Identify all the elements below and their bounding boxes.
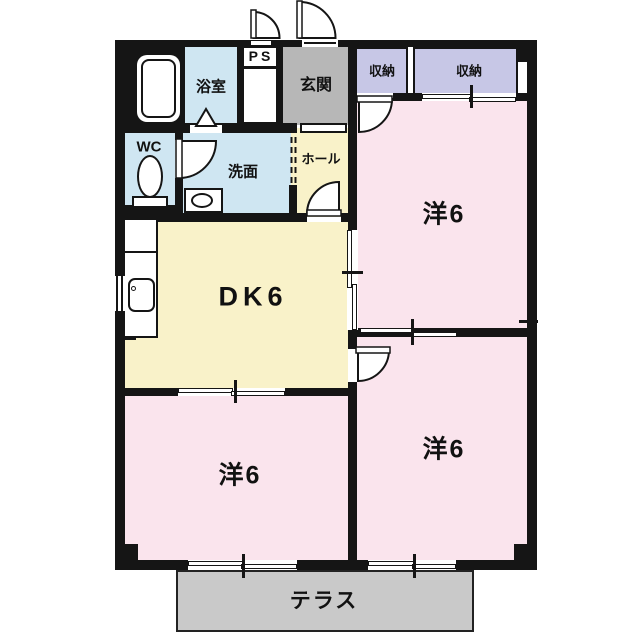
sliding-door-dk-upper-a — [347, 230, 352, 288]
sliding-tick-dk-lower — [234, 380, 237, 403]
sliding-door-dk-upper-b — [352, 284, 357, 330]
sliding-door-dk-lower-b — [231, 391, 285, 396]
western-lower-left-label: 洋6 — [219, 464, 262, 489]
window-lower-left-b — [241, 564, 297, 569]
entrance-label: 玄関 — [300, 78, 332, 94]
ps-label: PS — [249, 49, 274, 63]
sliding-tick-dk-upper — [342, 271, 363, 274]
window-tick-lower-left — [242, 554, 245, 578]
closet-left-label: 収納 — [369, 65, 395, 78]
window-lower-right-a — [368, 561, 414, 566]
dk-label: DK6 — [218, 284, 287, 311]
sliding-door-closet-right-b — [469, 97, 516, 102]
wc-label: WC — [137, 140, 162, 155]
bathroom-label: 浴室 — [196, 80, 226, 95]
washroom-label: 洗面 — [228, 165, 258, 180]
hall-label: ホール — [301, 153, 340, 166]
window-lower-left-a — [188, 561, 243, 566]
sliding-tick-right-rooms — [411, 319, 414, 345]
dk-lower-room-door-panel — [356, 347, 390, 353]
bath-folding-door-icon — [196, 109, 216, 126]
sliding-tick-closet-right — [470, 85, 473, 108]
sliding-door-right-rooms-a — [360, 328, 412, 333]
sliding-door-dk-lower-a — [178, 388, 233, 393]
wc-door-panel — [176, 139, 182, 178]
floor-plan: 浴室 PS 玄関 収納 収納 WC 洗面 ホール DK6 洋6 洋6 洋6 テラ… — [0, 0, 640, 640]
closet-right-label: 収納 — [456, 65, 482, 78]
wc-door-arc — [179, 141, 216, 178]
wall-junction-tick-right — [519, 320, 538, 323]
entrance-exterior-door-arc — [300, 2, 336, 38]
ps-exterior-door-panel — [251, 10, 256, 38]
window-lower-right-b — [412, 564, 456, 569]
western-lower-right-label: 洋6 — [423, 438, 466, 463]
hall-dk-door-panel — [307, 210, 341, 216]
hall-dk-door-arc — [307, 182, 339, 214]
window-tick-lower-right — [413, 554, 416, 578]
entrance-exterior-door-panel — [297, 1, 302, 38]
sliding-door-right-rooms-b — [410, 332, 457, 337]
closet-left-door-panel — [357, 96, 392, 102]
door-swing-overlay — [0, 0, 640, 640]
western-upper-right-label: 洋6 — [423, 203, 466, 228]
terrace-label: テラス — [290, 591, 359, 612]
closet-left-door-arc — [359, 99, 392, 132]
ps-exterior-door-arc — [254, 12, 280, 38]
dk-lower-room-door-arc — [358, 350, 389, 381]
sliding-door-closet-right-a — [422, 94, 471, 99]
